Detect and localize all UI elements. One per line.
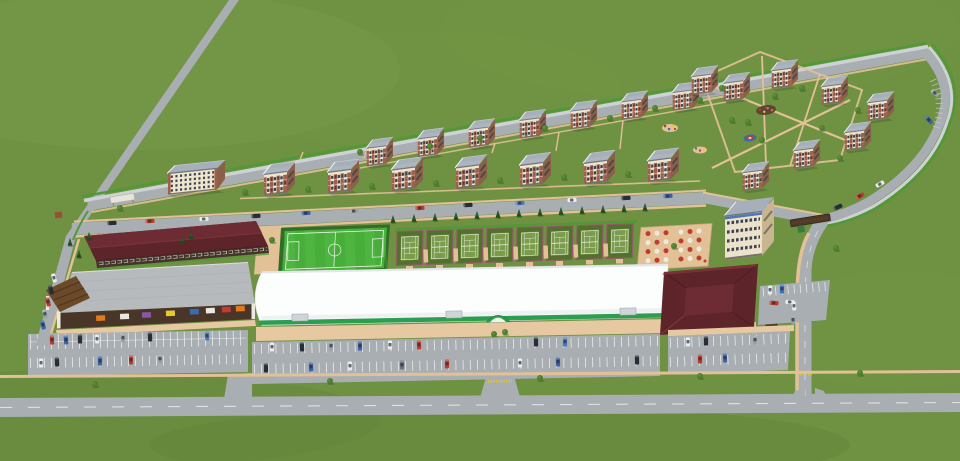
tennis-court — [516, 227, 543, 262]
car — [145, 219, 154, 224]
car — [329, 341, 333, 350]
car — [417, 340, 422, 349]
car — [400, 360, 404, 369]
car — [769, 301, 778, 306]
playground-east — [693, 147, 707, 154]
car — [264, 364, 268, 373]
car — [98, 356, 102, 365]
car — [95, 334, 100, 343]
car — [753, 336, 757, 345]
car — [348, 362, 352, 371]
flower-tub — [704, 260, 707, 263]
car — [621, 196, 630, 201]
car — [723, 353, 728, 362]
car — [64, 335, 69, 344]
car — [463, 203, 472, 208]
car — [518, 359, 522, 368]
car — [768, 285, 773, 294]
tennis-court — [546, 226, 573, 261]
car — [301, 211, 310, 216]
car — [415, 206, 424, 211]
car — [515, 201, 524, 206]
playground-central — [662, 124, 678, 132]
cafe-terrace — [637, 224, 712, 271]
car — [78, 335, 82, 344]
shopping-mall — [255, 264, 670, 341]
car — [791, 315, 796, 324]
tennis-court — [486, 228, 513, 263]
car — [251, 214, 260, 219]
facade-pillar — [57, 312, 61, 329]
car — [445, 359, 449, 368]
car — [199, 217, 208, 222]
aerial-site-render — [0, 0, 960, 461]
car — [556, 357, 561, 366]
tennis-court — [456, 229, 483, 264]
car — [270, 343, 274, 352]
car — [309, 362, 314, 371]
tennis-court — [396, 231, 423, 266]
car — [55, 357, 60, 366]
car — [148, 332, 153, 341]
car — [121, 333, 125, 342]
restaurant — [660, 264, 758, 338]
east-parking-lot — [668, 331, 790, 374]
car — [158, 354, 163, 363]
car — [300, 342, 305, 351]
tennis-court — [606, 224, 633, 259]
car — [567, 198, 576, 203]
car — [563, 337, 567, 346]
tennis-court — [426, 230, 453, 265]
transformer-hut — [55, 211, 63, 218]
car — [698, 355, 702, 364]
car — [107, 221, 116, 226]
car — [686, 337, 690, 346]
car — [39, 359, 43, 368]
car — [388, 341, 392, 350]
center-lot-driveway — [480, 376, 520, 398]
tennis-court — [576, 225, 603, 260]
car — [704, 337, 708, 346]
car — [792, 301, 797, 310]
facade-pillar — [252, 304, 256, 320]
car — [663, 194, 672, 199]
car — [534, 337, 538, 346]
car — [780, 285, 784, 294]
car — [129, 355, 133, 364]
car — [205, 331, 210, 340]
car — [635, 355, 639, 364]
car — [349, 209, 358, 214]
football-pitch — [278, 225, 390, 275]
car — [50, 335, 55, 344]
car — [358, 341, 362, 350]
